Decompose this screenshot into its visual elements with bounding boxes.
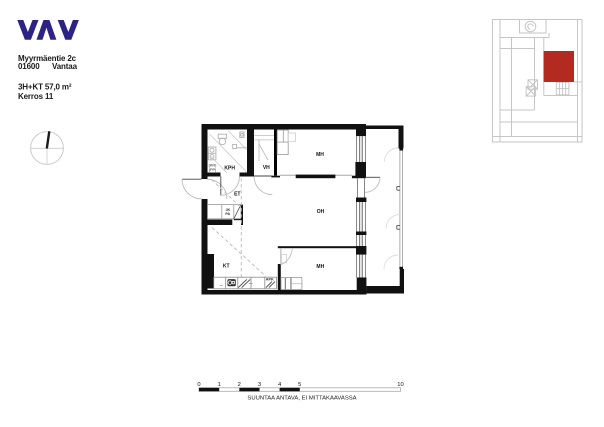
svg-text:OH: OH bbox=[317, 209, 325, 215]
svg-text:SUUNTAA ANTAVA, EI MITTAKAAVAS: SUUNTAA ANTAVA, EI MITTAKAAVASSA bbox=[247, 396, 356, 402]
svg-text:1: 1 bbox=[218, 382, 221, 388]
svg-text:MH: MH bbox=[316, 152, 324, 158]
svg-text:ET: ET bbox=[234, 192, 240, 198]
svg-text:01600: 01600 bbox=[18, 62, 40, 71]
svg-text:JK: JK bbox=[225, 208, 230, 212]
svg-text:10: 10 bbox=[397, 382, 403, 388]
svg-text:2: 2 bbox=[238, 382, 241, 388]
svg-text:Vantaa: Vantaa bbox=[52, 62, 78, 71]
svg-text:5: 5 bbox=[298, 382, 301, 388]
svg-text:0: 0 bbox=[197, 382, 200, 388]
svg-text:MH: MH bbox=[316, 264, 324, 270]
svg-text:KPH: KPH bbox=[224, 166, 235, 172]
svg-text:PA: PA bbox=[225, 212, 230, 216]
svg-text:Kerros 11: Kerros 11 bbox=[18, 92, 54, 101]
svg-text:APK: APK bbox=[266, 277, 274, 281]
svg-text:3H+KT 57,0 m²: 3H+KT 57,0 m² bbox=[18, 83, 72, 92]
svg-text:3: 3 bbox=[258, 382, 261, 388]
svg-text:(PP): (PP) bbox=[209, 168, 217, 172]
svg-text:(KR): (KR) bbox=[209, 163, 218, 167]
svg-text:KT: KT bbox=[223, 264, 230, 270]
svg-text:VH: VH bbox=[263, 165, 270, 171]
